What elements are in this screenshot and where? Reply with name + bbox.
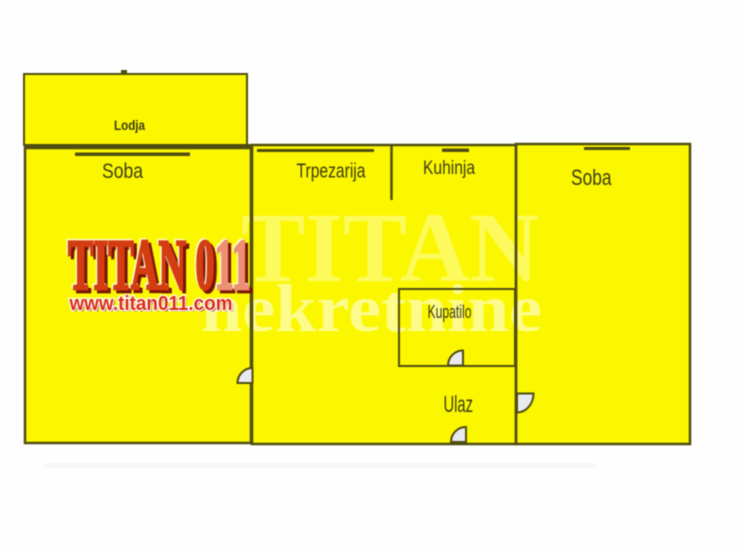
svg-text:Kupatilo: Kupatilo xyxy=(428,302,472,322)
svg-text:www.titan011.com: www.titan011.com xyxy=(69,293,233,315)
svg-text:Trpezarija: Trpezarija xyxy=(297,161,367,183)
svg-text:Kuhinja: Kuhinja xyxy=(423,158,475,179)
svg-text:Ulaz: Ulaz xyxy=(444,391,474,417)
svg-text:Soba: Soba xyxy=(102,160,143,183)
svg-text:Lodja: Lodja xyxy=(114,117,145,133)
svg-text:Soba: Soba xyxy=(571,165,612,190)
